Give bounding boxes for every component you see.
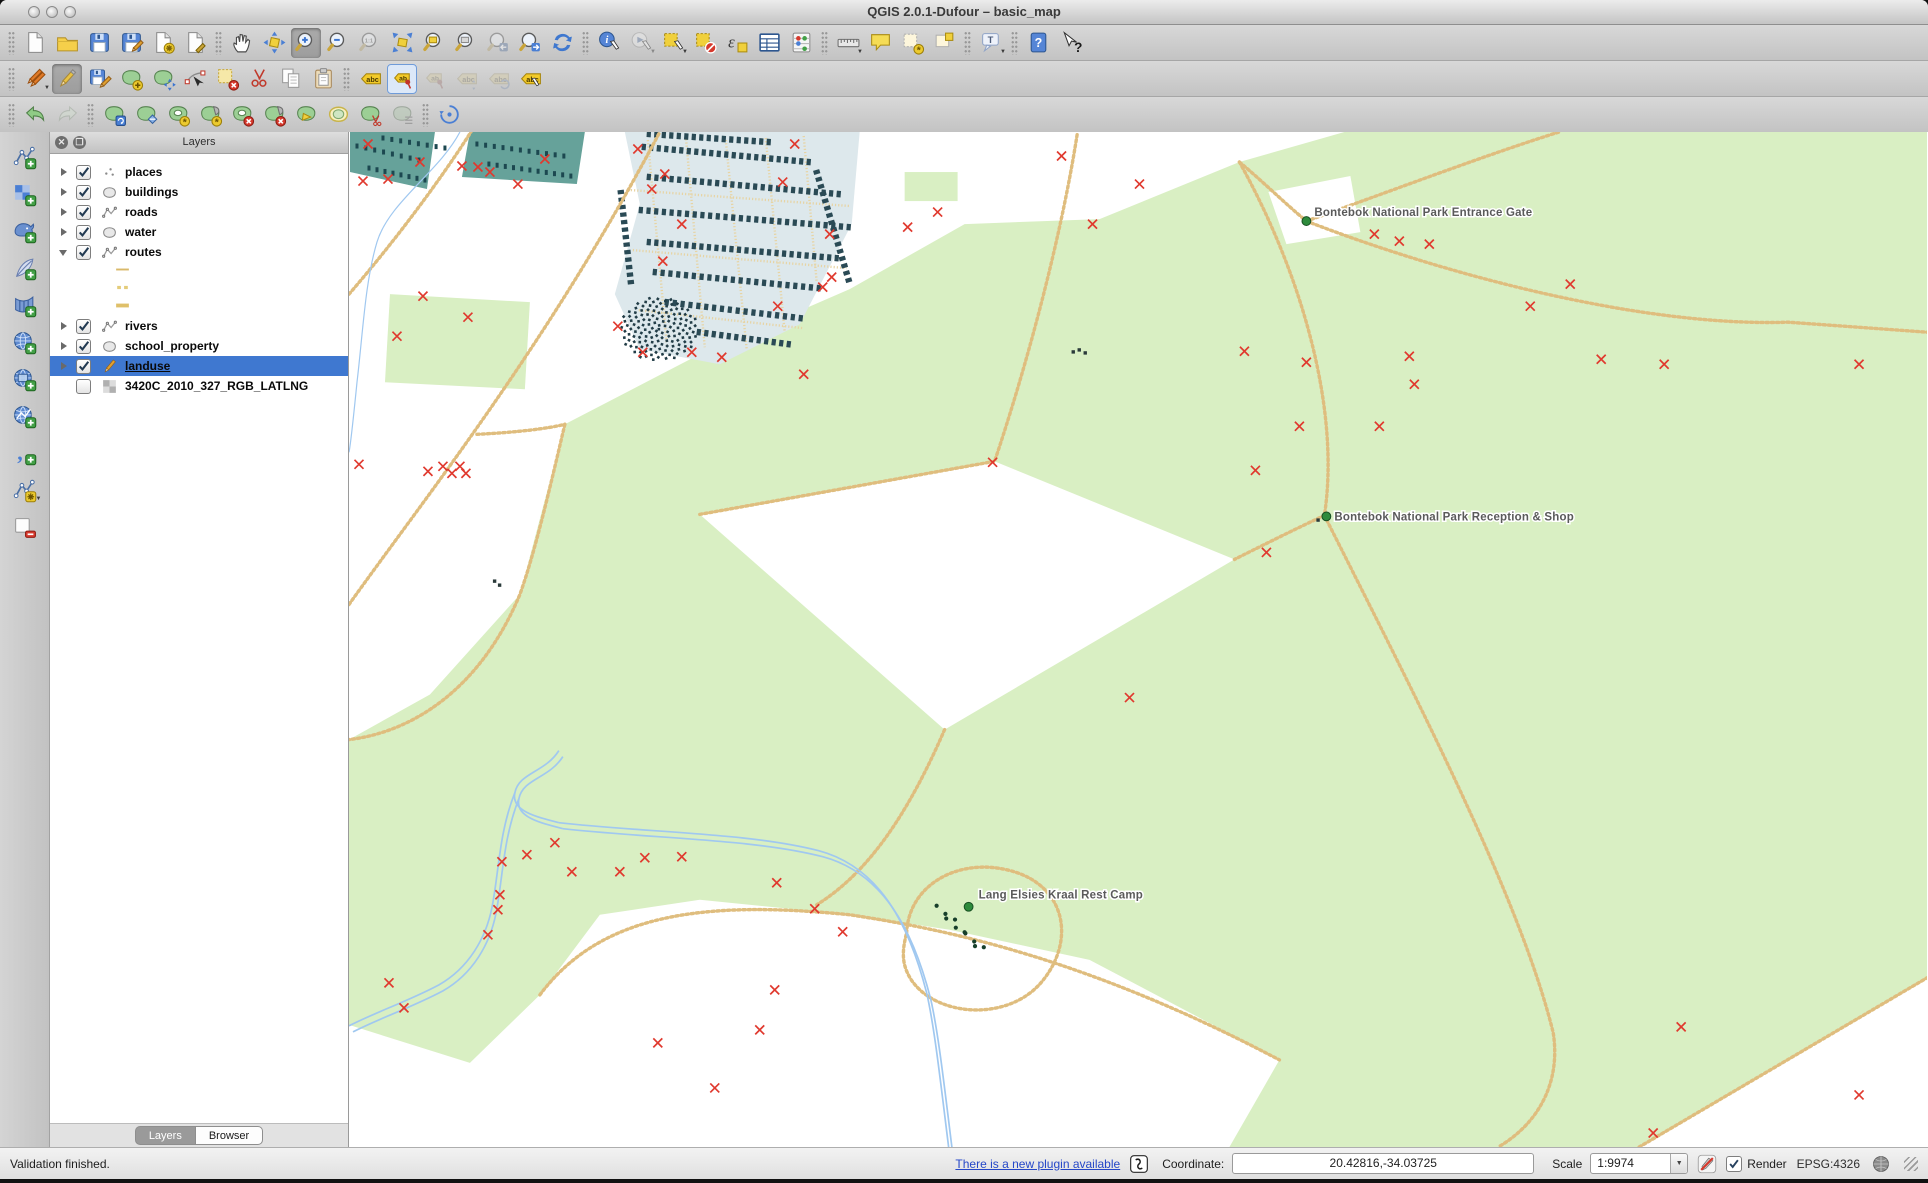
render-label: Render xyxy=(1747,1157,1786,1171)
open-project-button[interactable] xyxy=(52,28,82,58)
symbology-class-row[interactable] xyxy=(50,280,348,298)
panel-tab-layers[interactable]: Layers xyxy=(135,1126,195,1145)
toolbar-file-map-navigation: 1:1i▼▼ε▼*T▼?? xyxy=(0,25,1928,61)
toolbar-handle xyxy=(8,31,15,55)
layer-visibility-checkbox[interactable] xyxy=(76,225,91,240)
toolbar-handle xyxy=(964,31,971,55)
symbology-class-row[interactable] xyxy=(50,298,348,316)
deselect-features-button[interactable] xyxy=(690,28,720,58)
expand-right-icon[interactable] xyxy=(58,226,70,238)
refresh-map-button[interactable] xyxy=(547,28,577,58)
remove-layer-button[interactable] xyxy=(8,512,42,542)
render-checkbox[interactable] xyxy=(1726,1156,1742,1172)
zoom-full-extent-button[interactable] xyxy=(387,28,417,58)
crs-status: EPSG:4326 xyxy=(1797,1157,1860,1171)
qgis-window: QGIS 2.0.1-Dufour – basic_map 1:1i▼▼ε▼*T… xyxy=(0,0,1928,1179)
layer-symbol-polygon-icon xyxy=(97,224,121,241)
poi-dot xyxy=(964,902,973,911)
symbology-class-row[interactable] xyxy=(50,262,348,280)
text-annotation-button[interactable]: T▼ xyxy=(976,28,1006,58)
svg-text:abc: abc xyxy=(366,75,379,84)
layer-row-roads[interactable]: roads xyxy=(50,202,348,222)
toolbar-handle xyxy=(821,31,828,55)
new-print-composer-button[interactable] xyxy=(148,28,178,58)
svg-text:,: , xyxy=(17,441,22,465)
symbology-swatch-thick xyxy=(114,297,131,317)
change-label-button[interactable]: abc xyxy=(515,64,545,94)
pin-unpin-labels-button[interactable]: ab xyxy=(387,64,417,94)
add-postgis-layer-button[interactable] xyxy=(8,216,42,246)
svg-text:?: ? xyxy=(1074,40,1082,55)
minimize-window-button[interactable] xyxy=(46,6,58,18)
select-by-expression-button[interactable]: ε xyxy=(722,28,752,58)
resize-grip[interactable] xyxy=(1904,1157,1918,1171)
highlight-pinned-labels-button[interactable]: ab xyxy=(419,64,449,94)
toolbar-handle xyxy=(422,103,429,127)
add-wfs-layer-button[interactable] xyxy=(8,401,42,431)
add-ring-button[interactable]: * xyxy=(163,100,193,130)
scale-combobox[interactable]: 1:9974 ▼ xyxy=(1590,1153,1688,1174)
layer-tree: placesbuildingsroadswaterroutesriverssch… xyxy=(50,154,348,1123)
status-message: Validation finished. xyxy=(10,1157,110,1171)
new-plugin-link[interactable]: There is a new plugin available xyxy=(955,1157,1120,1171)
svg-text:ε: ε xyxy=(728,33,735,52)
expand-right-icon[interactable] xyxy=(58,320,70,332)
pan-map-button[interactable] xyxy=(227,28,257,58)
add-feature-button[interactable] xyxy=(116,64,146,94)
zoom-in-button[interactable] xyxy=(291,28,321,58)
layer-symbol-line-icon xyxy=(97,318,121,335)
delete-ring-button[interactable] xyxy=(227,100,257,130)
field-calculator-button[interactable] xyxy=(786,28,816,58)
simplify-feature-button[interactable] xyxy=(131,100,161,130)
toolbar-handle xyxy=(8,103,15,127)
layer-symbol-pencil-icon xyxy=(97,358,121,375)
layer-visibility-checkbox[interactable] xyxy=(76,339,91,354)
svg-text:abc: abc xyxy=(494,75,507,84)
undo-button[interactable] xyxy=(20,100,50,130)
current-edits-dropdown-icon[interactable]: ▼ xyxy=(44,85,50,91)
scale-dropdown-icon[interactable]: ▼ xyxy=(1670,1154,1687,1173)
layer-symbol-polygon-icon xyxy=(97,184,121,201)
toolbar-handle xyxy=(8,67,15,91)
paste-features-button[interactable] xyxy=(308,64,338,94)
node-tool-button[interactable] xyxy=(180,64,210,94)
layer-symbol-points-icon xyxy=(97,164,121,181)
layer-visibility-checkbox[interactable] xyxy=(76,205,91,220)
split-features-button[interactable] xyxy=(355,100,385,130)
reshape-features-button[interactable] xyxy=(291,100,321,130)
cut-features-button[interactable] xyxy=(244,64,274,94)
layers-panel: ✕ ❐ Layers placesbuildingsroadswaterrout… xyxy=(50,132,349,1147)
redo-button[interactable] xyxy=(52,100,82,130)
layer-row-water[interactable]: water xyxy=(50,222,348,242)
poi-dot xyxy=(1322,512,1331,521)
identify-features-button[interactable]: i xyxy=(594,28,624,58)
plugin-icon[interactable] xyxy=(1128,1153,1150,1175)
toolbar-handle xyxy=(582,31,589,55)
labeling-options-button[interactable]: abc xyxy=(355,64,385,94)
poi-dot xyxy=(1302,217,1311,226)
layer-label: 3420C_2010_327_RGB_LATLNG xyxy=(125,379,308,393)
panel-float-icon[interactable]: ❐ xyxy=(73,136,86,149)
expand-down-icon[interactable] xyxy=(58,246,70,258)
expand-right-icon[interactable] xyxy=(58,340,70,352)
zoom-next-button[interactable] xyxy=(515,28,545,58)
text-annotation-dropdown-icon[interactable]: ▼ xyxy=(1000,49,1006,55)
merge-features-button[interactable] xyxy=(387,100,417,130)
svg-text:T: T xyxy=(987,35,993,45)
panel-tab-browser[interactable]: Browser xyxy=(195,1126,263,1145)
layer-symbol-line-icon xyxy=(97,204,121,221)
open-attribute-table-button[interactable] xyxy=(754,28,784,58)
titlebar: QGIS 2.0.1-Dufour – basic_map xyxy=(0,0,1928,25)
stop-render-icon[interactable] xyxy=(1696,1153,1718,1175)
expand-right-icon[interactable] xyxy=(58,186,70,198)
svg-text:abc: abc xyxy=(462,75,475,84)
add-wms-layer-button[interactable] xyxy=(8,327,42,357)
pan-to-selection-button[interactable] xyxy=(259,28,289,58)
layer-row-routes[interactable]: routes xyxy=(50,242,348,262)
toolbar-handle xyxy=(87,103,94,127)
save-layer-edits-button[interactable] xyxy=(84,64,114,94)
new-shapefile-layer-button[interactable]: ▼ xyxy=(8,475,42,505)
new-project-button[interactable] xyxy=(20,28,50,58)
layer-visibility-checkbox[interactable] xyxy=(76,185,91,200)
layer-row-school_property[interactable]: school_property xyxy=(50,336,348,356)
run-feature-action-dropdown-icon[interactable]: ▼ xyxy=(650,49,656,55)
zoom-window-button[interactable] xyxy=(64,6,76,18)
layer-label: buildings xyxy=(125,185,178,199)
measure-line-dropdown-icon[interactable]: ▼ xyxy=(857,49,863,55)
map-tips-button[interactable] xyxy=(865,28,895,58)
zoom-to-selection-button[interactable] xyxy=(419,28,449,58)
panel-close-icon[interactable]: ✕ xyxy=(55,136,68,149)
window-title: QGIS 2.0.1-Dufour – basic_map xyxy=(0,0,1928,24)
layer-visibility-checkbox[interactable] xyxy=(76,379,91,394)
layer-label: water xyxy=(125,225,156,239)
svg-text:1:1: 1:1 xyxy=(364,38,373,44)
move-label-button[interactable]: abc xyxy=(451,64,481,94)
toolbar-handle xyxy=(215,31,222,55)
composer-manager-button[interactable] xyxy=(180,28,210,58)
layer-row-rivers[interactable]: rivers xyxy=(50,316,348,336)
layer-label: school_property xyxy=(125,339,219,353)
layers-panel-title: Layers xyxy=(182,136,215,148)
svg-text:?: ? xyxy=(1034,36,1042,50)
layer-row-places[interactable]: places xyxy=(50,162,348,182)
zoom-last-button[interactable] xyxy=(483,28,513,58)
coordinate-input[interactable]: 20.42816,-34.03725 xyxy=(1232,1153,1534,1174)
toolbar-manage-layers: ,▼ xyxy=(0,132,50,1147)
select-features-dropdown-icon[interactable]: ▼ xyxy=(682,49,688,55)
expand-right-icon[interactable] xyxy=(58,206,70,218)
expand-right-icon[interactable] xyxy=(58,166,70,178)
statusbar: Validation finished. There is a new plug… xyxy=(0,1147,1928,1179)
toolbar-digitizing-labeling: ▼abcabababcabcabc xyxy=(0,61,1928,97)
toolbar-handle xyxy=(1011,31,1018,55)
add-part-button[interactable]: * xyxy=(195,100,225,130)
layer-row-landuse[interactable]: landuse xyxy=(50,356,348,376)
panel-tabbar: LayersBrowser xyxy=(50,1123,348,1147)
zoom-actual-size-button[interactable]: 1:1 xyxy=(355,28,385,58)
add-wcs-layer-button[interactable] xyxy=(8,364,42,394)
layer-visibility-checkbox[interactable] xyxy=(76,165,91,180)
layer-label: rivers xyxy=(125,319,158,333)
add-raster-layer-button[interactable] xyxy=(8,179,42,209)
help-contents-button[interactable]: ? xyxy=(1023,28,1053,58)
rotate-point-symbols-button[interactable] xyxy=(434,100,464,130)
measure-line-button[interactable]: ▼ xyxy=(833,28,863,58)
save-project-button[interactable] xyxy=(84,28,114,58)
new-bookmark-button[interactable]: * xyxy=(897,28,927,58)
layer-visibility-checkbox[interactable] xyxy=(76,319,91,334)
map-label: Bontebok National Park Reception & Shop xyxy=(1334,511,1574,523)
show-bookmarks-button[interactable] xyxy=(929,28,959,58)
zoom-to-layer-button[interactable] xyxy=(451,28,481,58)
layer-label: routes xyxy=(125,245,162,259)
add-vector-layer-button[interactable] xyxy=(8,142,42,172)
rotate-feature-button[interactable] xyxy=(99,100,129,130)
layer-label: places xyxy=(125,165,162,179)
layer-symbol-line-icon xyxy=(97,244,121,261)
expand-right-icon[interactable] xyxy=(58,360,70,372)
layer-label: landuse xyxy=(125,359,170,373)
toolbar-handle xyxy=(343,67,350,91)
scale-value: 1:9974 xyxy=(1591,1154,1670,1173)
delete-part-button[interactable] xyxy=(259,100,289,130)
layer-visibility-checkbox[interactable] xyxy=(76,245,91,260)
toggle-editing-button[interactable] xyxy=(52,64,82,94)
layer-symbol-polygon-icon xyxy=(97,338,121,355)
layer-visibility-checkbox[interactable] xyxy=(76,359,91,374)
coordinate-label: Coordinate: xyxy=(1162,1157,1224,1171)
toolbar-advanced-digitizing: ** xyxy=(0,97,1928,133)
delete-selected-button[interactable] xyxy=(212,64,242,94)
run-feature-action-button[interactable]: ▼ xyxy=(626,28,656,58)
layer-label: roads xyxy=(125,205,158,219)
add-spatialite-layer-button[interactable] xyxy=(8,253,42,283)
close-window-button[interactable] xyxy=(28,6,40,18)
map-label: Bontebok National Park Entrance Gate xyxy=(1314,207,1532,219)
no-expander xyxy=(58,380,70,392)
select-features-button[interactable]: ▼ xyxy=(658,28,688,58)
offset-curve-button[interactable] xyxy=(323,100,353,130)
symbology-swatch-dashed xyxy=(114,279,131,299)
layers-panel-header: ✕ ❐ Layers xyxy=(50,132,348,154)
move-feature-button[interactable] xyxy=(148,64,178,94)
symbology-swatch-thin xyxy=(114,261,131,281)
whats-this-button[interactable]: ? xyxy=(1055,28,1085,58)
current-edits-button[interactable]: ▼ xyxy=(20,64,50,94)
map-label: Lang Elsies Kraal Rest Camp xyxy=(979,890,1143,902)
scale-label: Scale xyxy=(1552,1157,1582,1171)
add-delimited-text-layer-button[interactable]: , xyxy=(8,438,42,468)
layer-row-3420C_2010_327_RGB_LATLNG[interactable]: 3420C_2010_327_RGB_LATLNG xyxy=(50,376,348,396)
copy-features-button[interactable] xyxy=(276,64,306,94)
map-canvas[interactable]: Bontebok National Park Entrance GateBont… xyxy=(349,132,1928,1147)
layer-symbol-raster-icon xyxy=(97,378,121,395)
new-shapefile-layer-dropdown-icon[interactable]: ▼ xyxy=(36,496,42,502)
layer-row-buildings[interactable]: buildings xyxy=(50,182,348,202)
svg-text:i: i xyxy=(605,35,608,46)
save-project-as-button[interactable] xyxy=(116,28,146,58)
rotate-label-button[interactable]: abc xyxy=(483,64,513,94)
crs-globe-icon[interactable] xyxy=(1870,1153,1892,1175)
add-mssql-layer-button[interactable] xyxy=(8,290,42,320)
zoom-out-button[interactable] xyxy=(323,28,353,58)
